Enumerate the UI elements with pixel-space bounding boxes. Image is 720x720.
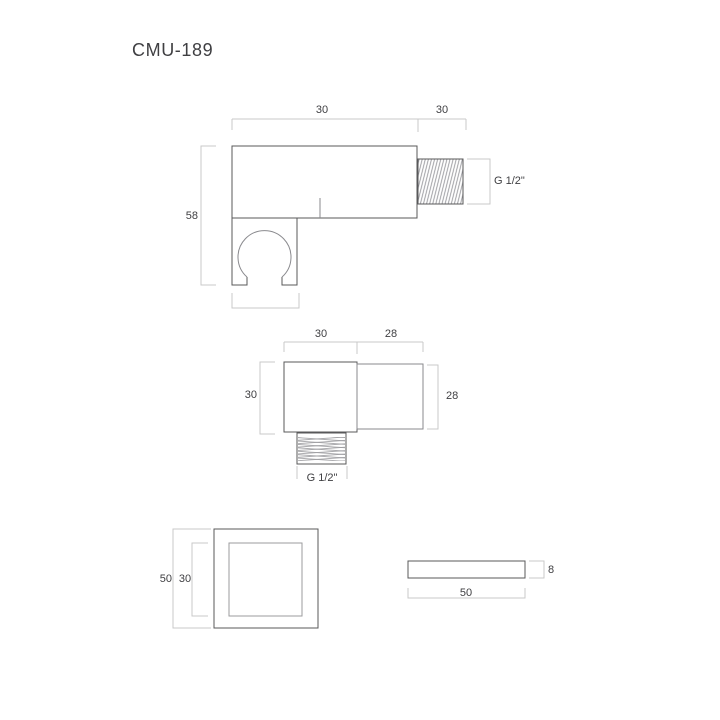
dim-label-thread-length: 30 (436, 104, 448, 116)
dim-label-body-width: 30 (316, 104, 328, 116)
side-view-dimension-lines (201, 119, 490, 308)
dim-line-holder-width (232, 293, 299, 308)
holder-ring-arc (238, 231, 291, 277)
dim-line-top-widths (232, 119, 466, 132)
bottom-thread-hatch-b (298, 437, 345, 461)
flange-side-dimension-lines (408, 561, 544, 598)
flange-front-dimension-labels: 50 30 (160, 573, 191, 585)
flange-plate-outline (408, 561, 525, 578)
bottom-body-outline (284, 362, 357, 432)
side-view: 30 30 58 G 1/2" (186, 104, 525, 308)
dim-label-total-height: 58 (186, 210, 198, 222)
side-view-outline (232, 146, 463, 285)
drawing-title: CMU-189 (132, 40, 213, 60)
dim-line-thread-size (467, 159, 490, 204)
flange-side-dimension-labels: 8 50 (460, 564, 554, 599)
flange-front-view: 50 30 (160, 529, 318, 628)
dim-label-flange-outer: 50 (160, 573, 172, 585)
bottom-view-dimension-lines (260, 342, 438, 479)
flange-front-inner (229, 543, 302, 616)
flange-side-view: 8 50 (408, 561, 554, 599)
dim-label-spout-width: 28 (446, 390, 458, 402)
technical-drawing: CMU-189 30 30 58 G 1/2" (0, 0, 720, 720)
side-body-outline (232, 146, 417, 218)
spec-sheet-page: CMU-189 30 30 58 G 1/2" (0, 0, 720, 720)
bottom-spout-outline (357, 364, 423, 429)
dim-line-bottom-widths (284, 342, 423, 354)
dim-label-bottom-thread-size: G 1/2" (307, 472, 338, 484)
dim-line-spout-width (427, 365, 438, 429)
dim-line-body-depth (260, 362, 275, 434)
side-view-inner-edges (238, 198, 320, 277)
bottom-view-dimension-labels: 30 28 30 28 G 1/2" (245, 328, 459, 484)
dim-label-thread-size: G 1/2" (494, 175, 525, 187)
dim-label-spout-length: 28 (385, 328, 397, 340)
flange-side-outline (408, 561, 525, 578)
dim-line-total-height (201, 146, 216, 285)
bottom-view-spout (357, 364, 423, 429)
side-holder-outline (232, 218, 297, 285)
flange-inner-square (229, 543, 302, 616)
dim-label-plate-width: 50 (460, 587, 472, 599)
dim-label-plate-thickness: 8 (548, 564, 554, 576)
dim-line-flange-inner (192, 543, 208, 616)
dim-label-flange-inner: 30 (179, 573, 191, 585)
dim-line-plate-thickness (529, 561, 544, 578)
bottom-view: 30 28 30 28 G 1/2" (245, 328, 459, 484)
dim-label-bottom-body-width: 30 (315, 328, 327, 340)
side-thread-hatch (418, 159, 463, 204)
dim-label-body-depth: 30 (245, 389, 257, 401)
